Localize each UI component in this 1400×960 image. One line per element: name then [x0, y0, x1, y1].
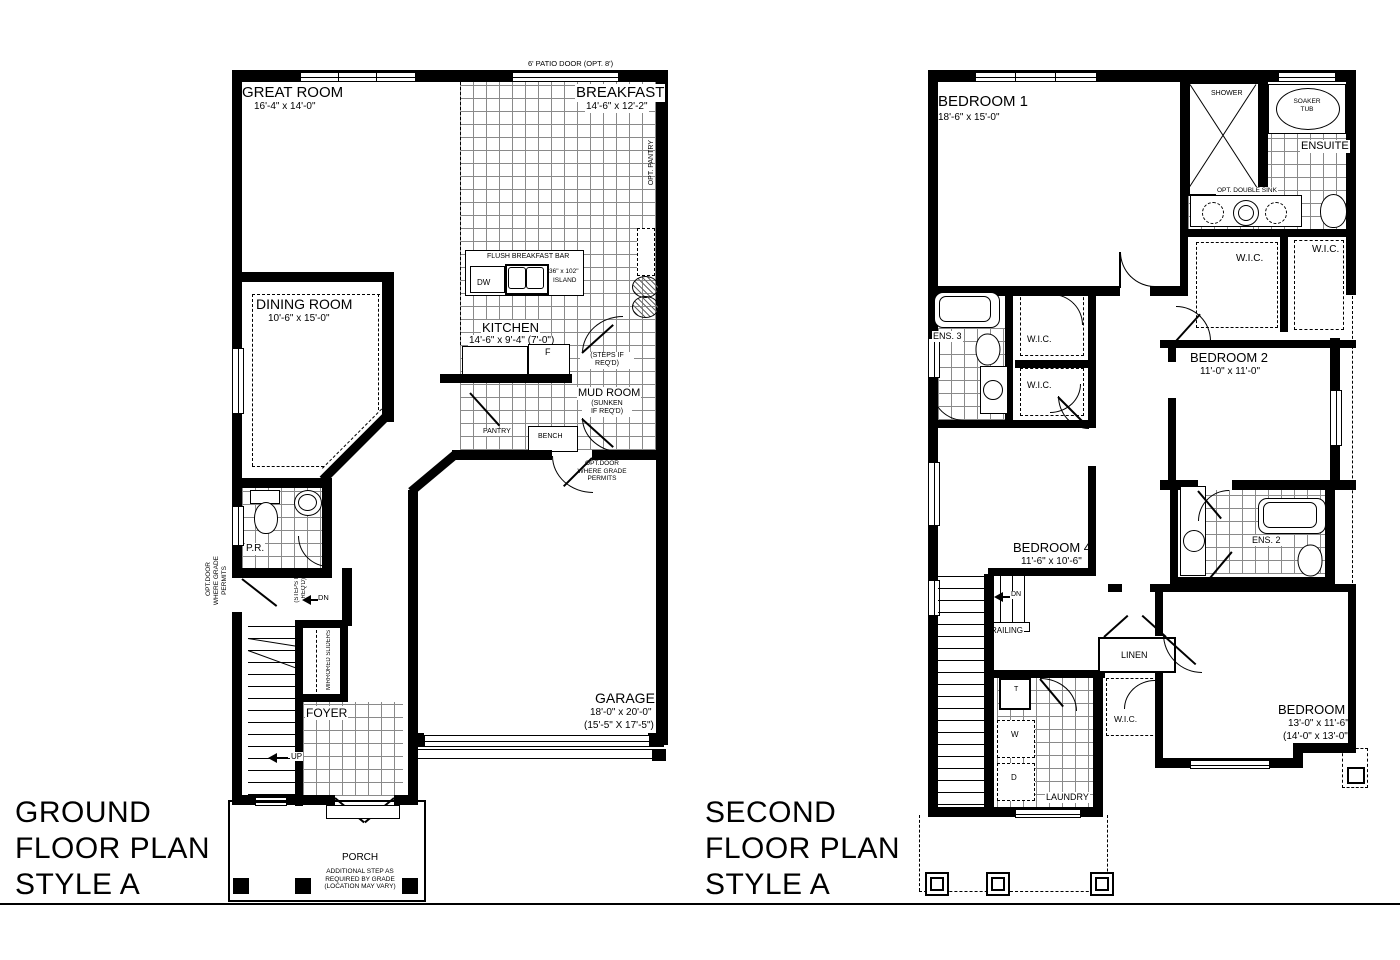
- foyer-label: FOYER: [305, 706, 348, 720]
- wall: [242, 478, 330, 488]
- wall: [1160, 340, 1356, 348]
- window: [1015, 809, 1081, 818]
- window: [300, 72, 340, 82]
- wall: [988, 568, 1096, 576]
- sink: [1265, 202, 1287, 224]
- sink-basin: [526, 267, 544, 289]
- down-label: DN: [318, 594, 329, 603]
- garage-step: [652, 749, 666, 761]
- wall: [382, 282, 394, 422]
- door-leaf: [1119, 252, 1121, 288]
- title-line: GROUND: [15, 795, 210, 831]
- wall: [1108, 584, 1122, 592]
- wic-label: W.I.C.: [1235, 253, 1264, 265]
- flush-breakfast-bar-label: FLUSH BREAKFAST BAR: [487, 253, 569, 261]
- breakfast-dims: 14'-6" x 12'-2": [585, 101, 649, 113]
- garage-door: [424, 735, 650, 747]
- title-line: FLOOR PLAN: [15, 831, 210, 867]
- porch-note-line: ADDITIONAL STEP AS: [326, 868, 394, 875]
- opt-door-line: OPT.DOOR: [585, 460, 619, 467]
- window: [975, 72, 1017, 82]
- dining-dashed-outline: [252, 466, 324, 467]
- garage-label: GARAGE: [595, 690, 655, 707]
- sink-bowl: [298, 494, 317, 511]
- patio-door-note: 6' PATIO DOOR (OPT. 8'): [528, 60, 613, 69]
- bathtub-inner: [939, 296, 991, 322]
- window: [376, 72, 416, 82]
- wic-label: W.I.C.: [1113, 714, 1138, 724]
- ens2-label: ENS. 2: [1251, 535, 1282, 546]
- island-label: ISLAND: [553, 277, 576, 285]
- porch-note-line: (LOCATION MAY VARY): [324, 883, 395, 890]
- title-line: STYLE A: [705, 867, 900, 903]
- sink-bowl: [1238, 205, 1254, 221]
- mud-room-note: (SUNKEN IF REQ'D): [582, 400, 632, 417]
- wall: [232, 568, 332, 578]
- bedroom1-label: BEDROOM 1: [938, 93, 1028, 111]
- washer-label: W: [1011, 730, 1019, 739]
- kitchen-label: KITCHEN: [481, 320, 540, 335]
- bedroom3-dims-alt: (14'-0" x 13'-0"): [1283, 731, 1351, 743]
- wall: [1232, 480, 1356, 490]
- soaker-line: TUB: [1301, 106, 1314, 113]
- window: [1190, 760, 1270, 769]
- sheet-divider-line: [0, 903, 1400, 905]
- wall: [342, 568, 352, 626]
- wall: [295, 620, 348, 628]
- porch-post: [295, 878, 311, 894]
- second-floor-plan: BEDROOM 1 18'-6" x 15'-0" SHOWER SOAKER …: [700, 0, 1400, 960]
- sink: [983, 380, 1003, 400]
- powder-room-label: P.R.: [245, 543, 265, 555]
- stairwell: [938, 576, 986, 810]
- wall: [1015, 360, 1088, 368]
- opt-door-line: OPT.DOOR: [205, 562, 212, 596]
- soaker-tub-label: SOAKER TUB: [1290, 98, 1324, 113]
- dishwasher-label: DW: [477, 278, 490, 287]
- toilet: [1320, 194, 1347, 228]
- wall: [656, 82, 668, 745]
- shower-label: SHOWER: [1210, 90, 1244, 98]
- down-label: DN: [1010, 591, 1022, 599]
- up-label: UP: [290, 752, 303, 761]
- ens3-label: ENS. 3: [932, 331, 963, 342]
- wic-label: W.I.C.: [1311, 244, 1340, 256]
- bathtub-inner: [1263, 502, 1317, 528]
- dining-dashed-outline: [252, 294, 253, 466]
- second-floor-title: SECOND FLOOR PLAN STYLE A: [705, 795, 900, 903]
- bedroom1-dims: 18'-6" x 15'-0": [938, 112, 1000, 124]
- side-door-opening: [232, 576, 242, 612]
- patio-door-jamb: [502, 70, 512, 82]
- patio-door-jamb: [618, 70, 628, 82]
- window: [1330, 390, 1342, 446]
- floor-plan-sheet: { "meta": {"paper_color": "#ffffff", "in…: [0, 0, 1400, 960]
- great-room-dims: 16'-4" x 14'-0": [254, 101, 316, 113]
- roof-outline-dashed: [919, 815, 920, 891]
- porch-note-line: REQUIRED BY GRADE: [325, 876, 395, 883]
- wall: [1188, 229, 1346, 237]
- up-arrow-icon: [270, 757, 288, 759]
- opt-door-line: PERMITS: [588, 475, 617, 482]
- wic-label: W.I.C.: [1026, 380, 1053, 391]
- great-room-label: GREAT ROOM: [242, 84, 343, 102]
- opt-double-sink-label: OPT. DOUBLE SINK: [1216, 187, 1278, 195]
- title-line: FLOOR PLAN: [705, 831, 900, 867]
- wall: [232, 82, 242, 805]
- wall: [408, 490, 418, 805]
- porch-note: ADDITIONAL STEP AS REQUIRED BY GRADE (LO…: [322, 868, 398, 891]
- dining-room-label: DINING ROOM: [256, 296, 352, 313]
- garage-apron: [418, 749, 656, 759]
- garage-dims-alt: (15'-5" X 17'-5"): [584, 720, 654, 732]
- steps-note-line: REQ'D): [595, 360, 619, 367]
- dining-dashed-outline: [322, 409, 382, 469]
- wall: [440, 374, 572, 383]
- wall: [382, 272, 394, 282]
- linen-label: LINEN: [1121, 650, 1148, 661]
- soaker-line: SOAKER: [1293, 98, 1320, 105]
- garage-door-jamb: [408, 733, 424, 747]
- wall: [452, 450, 552, 460]
- wall: [1088, 286, 1096, 428]
- wall: [242, 272, 382, 282]
- garage-dims: 18'-0" x 20'-0": [590, 707, 652, 719]
- steps-note-line: (STEPS IF: [590, 352, 623, 359]
- bedroom2-dims: 11'-0" x 11'-0": [1200, 366, 1260, 378]
- roof-post: [986, 872, 1010, 896]
- window: [338, 72, 378, 82]
- garage-door-jamb: [648, 733, 664, 747]
- opt-door-garage-note: OPT.DOOR WHERE GRADE PERMITS: [572, 460, 632, 483]
- wall: [1170, 480, 1178, 585]
- toilet: [976, 334, 1001, 366]
- title-line: STYLE A: [15, 867, 210, 903]
- opt-door-side-note: WHERE GRADE: [214, 556, 221, 605]
- dining-room-dims: 10'-6" x 15'-0": [268, 313, 330, 325]
- opt-door-side-note: PERMITS: [222, 566, 229, 595]
- planter: [632, 296, 659, 318]
- island-dims: 36" x 102": [549, 268, 579, 276]
- wall: [592, 450, 656, 460]
- bedroom3-label: BEDROOM 3: [1278, 702, 1356, 717]
- wall: [1088, 466, 1096, 576]
- ground-floor-plan: 6' PATIO DOOR (OPT. 8') DINING ROOM 10'-…: [0, 0, 700, 960]
- wall: [1258, 82, 1268, 192]
- mud-note-line: (SUNKEN: [591, 400, 623, 407]
- pantry-label: PANTRY: [482, 428, 512, 436]
- wall: [340, 628, 348, 698]
- sink: [1202, 202, 1224, 224]
- bedroom3-dims: 13'-0" x 11'-6": [1288, 718, 1349, 730]
- railing-label: RAILING: [990, 626, 1024, 635]
- sink: [1183, 530, 1205, 552]
- steps-note: (STEPS IF REQ'D): [580, 352, 634, 369]
- bedroom4-label: BEDROOM 4: [1012, 540, 1092, 555]
- steps-note-vertical: (STEPS IF: [294, 574, 300, 603]
- door-swing: [1120, 252, 1155, 287]
- wall: [1168, 398, 1176, 484]
- opt-door-side-note: OPT.DOOR: [206, 562, 213, 596]
- porch-post: [402, 878, 418, 894]
- wall: [1325, 480, 1335, 585]
- room-divider-dashed: [460, 82, 461, 345]
- window: [232, 506, 244, 546]
- wall: [989, 670, 1105, 678]
- angled-wall: [320, 412, 391, 483]
- side-door-leaf: [241, 578, 277, 607]
- mud-note-line: IF REQ'D): [591, 408, 623, 415]
- window: [928, 462, 940, 526]
- wall: [1150, 584, 1356, 592]
- wic-label: W.I.C.: [1026, 334, 1053, 345]
- wall: [1168, 348, 1176, 362]
- optional-bay-post: [1347, 767, 1365, 784]
- wall: [1348, 588, 1356, 753]
- bedroom2-label: BEDROOM 2: [1190, 350, 1268, 365]
- dryer-label: D: [1011, 773, 1017, 782]
- down-arrow-icon: [304, 599, 318, 601]
- laundry-tub-label: T: [1014, 686, 1018, 694]
- opt-pantry-cabinet: [637, 228, 655, 276]
- ground-floor-title: GROUND FLOOR PLAN STYLE A: [15, 795, 210, 903]
- title-line: SECOND: [705, 795, 900, 831]
- down-arrow-icon: [996, 596, 1010, 598]
- angled-wall: [408, 451, 458, 495]
- toilet: [1298, 545, 1323, 577]
- roof-post: [925, 872, 949, 896]
- wall: [1093, 670, 1103, 816]
- opt-door-line: WHERE GRADE: [577, 468, 626, 475]
- ensuite-label: ENSUITE: [1300, 140, 1350, 153]
- sink-basin: [508, 267, 526, 289]
- dining-dashed-outline: [378, 294, 379, 410]
- wall: [1280, 237, 1288, 332]
- opt-pantry-label: OPT. PANTRY: [648, 140, 655, 185]
- porch-post: [233, 878, 249, 894]
- porch-label: PORCH: [342, 852, 378, 864]
- window: [1015, 72, 1057, 82]
- bedroom4-dims: 11'-6" x 10'-6": [1020, 556, 1083, 568]
- wall: [984, 574, 994, 816]
- window: [1278, 72, 1336, 82]
- mirrored-sliders-label: MIRRORED SLIDERS: [326, 630, 332, 690]
- laundry-label: LAUNDRY: [1045, 792, 1090, 803]
- breakfast-label: BREAKFAST: [575, 84, 665, 102]
- patio-door: [512, 72, 620, 82]
- window: [928, 338, 940, 378]
- bench-label: BENCH: [538, 433, 563, 441]
- closet-door-leaf: [1103, 615, 1128, 638]
- mud-room-label: MUD ROOM: [577, 387, 641, 400]
- wall: [928, 82, 938, 815]
- dining-dashed-outline: [252, 294, 380, 295]
- fridge-label: F: [545, 347, 551, 358]
- closet-dashed-line: [316, 630, 317, 692]
- window: [1055, 72, 1097, 82]
- wall: [1155, 592, 1163, 636]
- planter: [632, 276, 659, 298]
- toilet: [254, 502, 278, 534]
- wall: [1346, 82, 1356, 295]
- wall: [295, 628, 303, 806]
- window: [232, 348, 244, 414]
- roof-post: [1090, 872, 1114, 896]
